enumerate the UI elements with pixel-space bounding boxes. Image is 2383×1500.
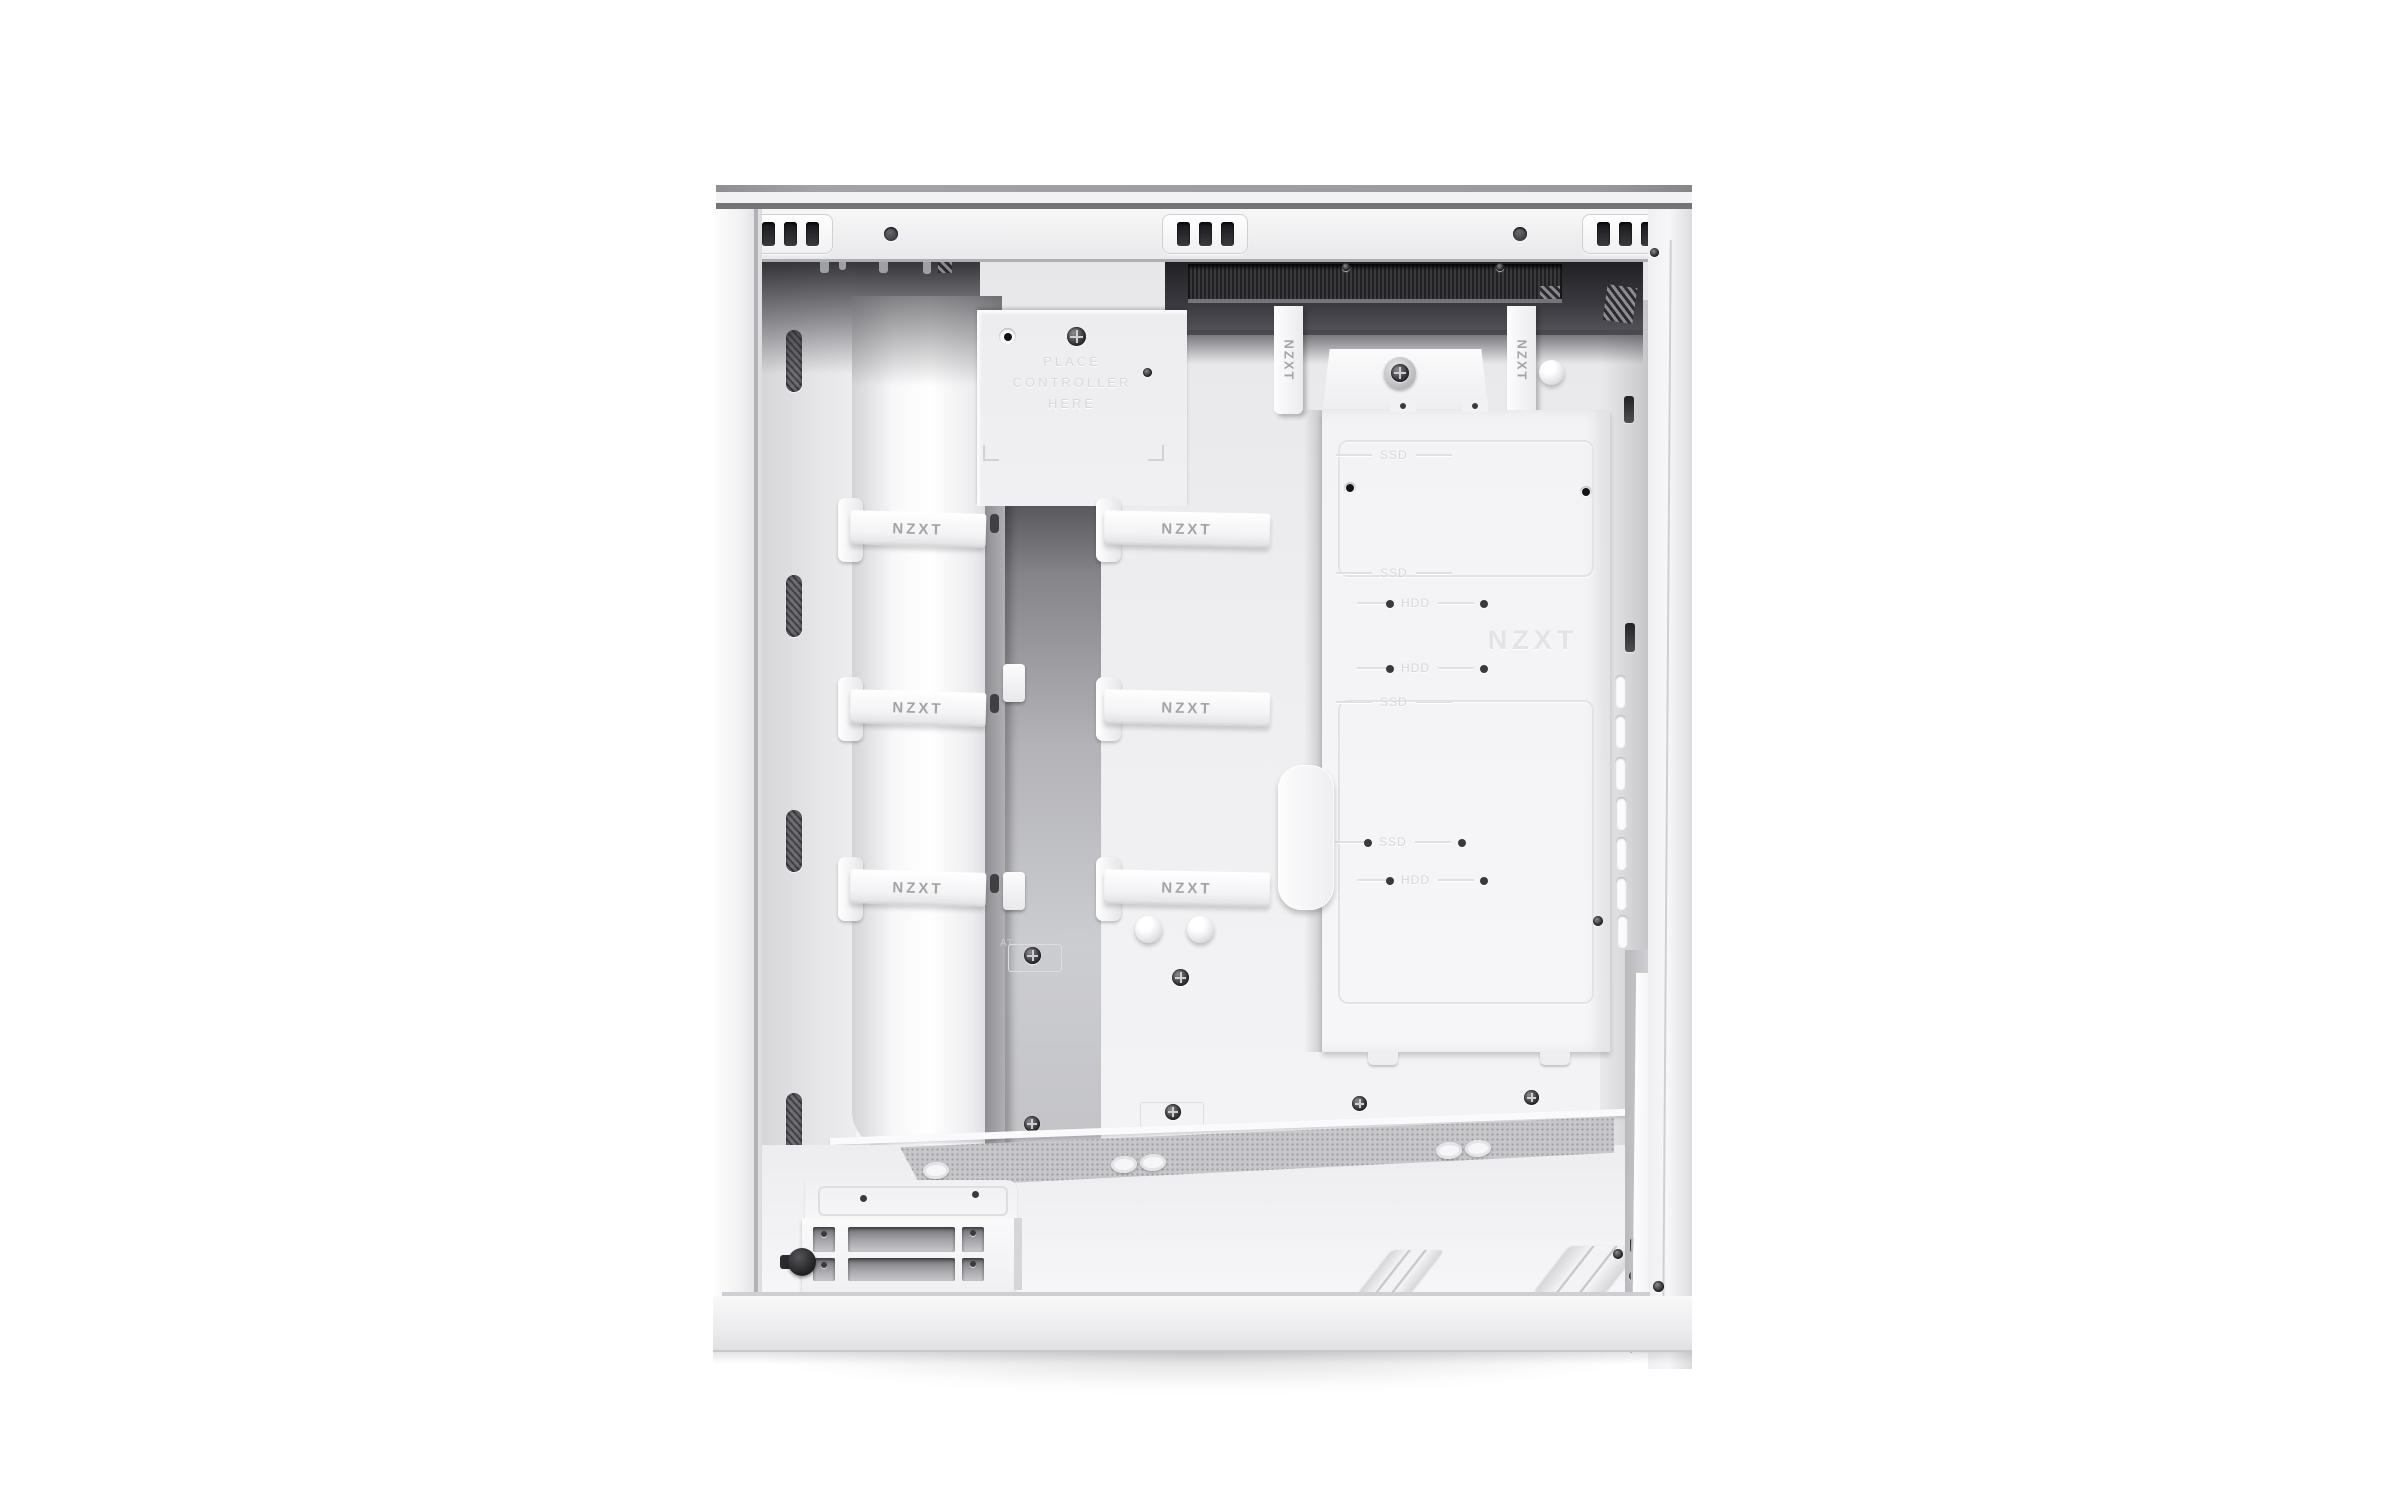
drive-label-row: HDD [1357,661,1474,675]
cable-strap: NZXT [1104,869,1271,906]
clip-slot [762,222,775,246]
cage-rect-cutout [848,1258,955,1281]
drive-label: HDD [1401,661,1430,675]
rear-hook-cutout [1625,623,1635,652]
chassis-hook-tab [820,261,829,273]
plate-corner-mark [983,445,999,461]
cage-top-hole [860,1195,867,1202]
controller-plate-screw [1067,327,1086,346]
vertical-cable-strap: NZXT [1507,306,1536,414]
rear-vent-slot [1616,877,1627,910]
channel-latch [1003,664,1025,702]
plate-corner-mark [1148,445,1164,461]
rear-hook-cutout [1624,396,1634,423]
strap-label: NZXT [892,699,944,717]
cable-strap: NZXT [1104,689,1271,726]
mesh-screw [1342,263,1350,271]
cage-hole [821,1231,827,1237]
cage-top-hole [972,1191,979,1198]
drive-label-row: SSD [1336,566,1452,580]
drive-label: SSD [1379,835,1407,849]
clip-slot [1199,222,1212,246]
vertical-cable-strap: NZXT [1274,306,1303,414]
mounting-peg [1539,360,1564,385]
tray-foot [1540,1052,1570,1065]
left-panel-seam [754,209,758,1352]
cable-strap: NZXT [1104,510,1271,547]
cable-strap: NZXT [850,689,987,727]
wall-screw [1524,1090,1539,1105]
mesh-screw [1496,263,1504,271]
strap-label: NZXT [1161,879,1213,897]
channel-latch [1003,872,1025,910]
clip-slot [784,222,797,246]
rear-vent-slot [1616,837,1627,870]
drive-label-row: SSD [1336,695,1452,709]
drive-label: SSD [1380,695,1408,709]
cable-channel-recess [1005,476,1101,1190]
tray-ear-hole [1472,403,1478,409]
drive-label: HDD [1401,596,1430,610]
chassis-hook-tab [923,261,931,274]
cage-rect-cutout [848,1227,955,1252]
standoff-peg [1135,916,1162,943]
tray-screw-dot [1480,877,1488,885]
tray-screw-dot [1386,665,1394,673]
rear-vent-slot [1615,675,1626,708]
thumbscrew-center [1391,364,1409,382]
top-rail-hole [1513,227,1527,241]
cage-hole [970,1230,976,1236]
cage-hole [821,1262,827,1268]
cage-thumbscrew [788,1248,816,1276]
cable-strap: NZXT [850,510,987,548]
bottom-rail-band [713,1296,1692,1352]
strap-label: NZXT [1161,520,1213,538]
wall-screw [1172,969,1189,986]
strap-label: NZXT [892,520,944,538]
top-rail-hole [884,227,898,241]
clip-slot [1619,222,1632,246]
drive-label-row: HDD [1357,596,1474,610]
top-rail-clip-group [1162,214,1248,254]
hdd-tray-outline [1338,700,1594,1004]
drive-label: SSD [1380,566,1408,580]
tray-hole [1344,482,1356,494]
case-top-edge-line [716,185,1692,192]
top-mesh-vent [1188,264,1562,302]
mesh-end-hatch [1540,286,1560,299]
clip-slot [1597,222,1610,246]
rear-vent-slot [1615,715,1626,748]
rear-screw [1593,916,1603,926]
chassis-hook-tab [839,261,846,270]
clip-slot [806,222,819,246]
mesh-bottom-lip [1188,299,1562,303]
bottom-band-shadow [713,1350,1692,1364]
tray-ear-hole [1400,403,1406,409]
cable-vent-slot [786,575,802,637]
tray-foot [1368,1052,1398,1065]
wall-screw [1024,947,1041,964]
drive-cage-side [1014,1218,1022,1290]
rear-vent-slot [1616,797,1627,830]
drive-cage-top-inset [818,1186,1008,1216]
strap-label: NZXT [1161,699,1213,717]
tray-hole [1580,486,1592,498]
drive-label: HDD [1401,873,1430,887]
chassis-hook-tab [879,261,888,273]
drive-label-row: HDD [1357,873,1474,887]
clip-slot [1221,222,1234,246]
top-right-corner-screw [1650,248,1659,257]
clip-slot [1177,222,1190,246]
controller-text-line1: PLACE [977,354,1167,369]
tray-screw-dot [1386,600,1394,608]
cable-vent-slot [786,810,802,872]
strap-anchor-slot [990,514,999,533]
rear-vent-hatch [1603,284,1638,324]
tray-screw-dot [1458,839,1466,847]
strap-label: NZXT [1281,339,1296,381]
bottom-right-screw [1653,1281,1664,1292]
rear-vent-slot [1617,915,1628,948]
wall-screw [1352,1096,1367,1111]
controller-plate-hole [999,328,1016,345]
drive-label-row: SSD [1335,835,1451,849]
tray-screw-dot [1480,665,1488,673]
standoff-peg [1187,916,1214,943]
corner-screw [1613,1249,1623,1259]
controller-text-line3: HERE [977,396,1167,411]
tray-screw-dot [1364,839,1372,847]
pc-case-product-photo: PLACE CONTROLLER HERE NZXT NZXT SSD SSD … [0,0,2383,1500]
strap-label: NZXT [892,879,944,897]
strap-anchor-slot [990,694,999,713]
strap-label: NZXT [1514,339,1529,381]
controller-text-line2: CONTROLLER [977,375,1167,390]
drive-tray-shadow [1304,410,1324,1052]
eatx-marking: EATX [1060,932,1089,943]
strap-anchor-slot [990,874,999,893]
cage-hole [970,1261,976,1267]
small-screw [1143,368,1152,377]
tray-screw-dot [1480,600,1488,608]
wall-screw [1165,1104,1181,1120]
tray-screw-dot [1386,877,1394,885]
cable-strap: NZXT [850,869,987,907]
nzxt-watermark: NZXT [1468,625,1598,656]
support-handle [1278,765,1334,910]
rear-vent-slot [1615,757,1626,790]
drive-label: SSD [1380,448,1408,462]
drive-label-row: SSD [1336,448,1452,462]
